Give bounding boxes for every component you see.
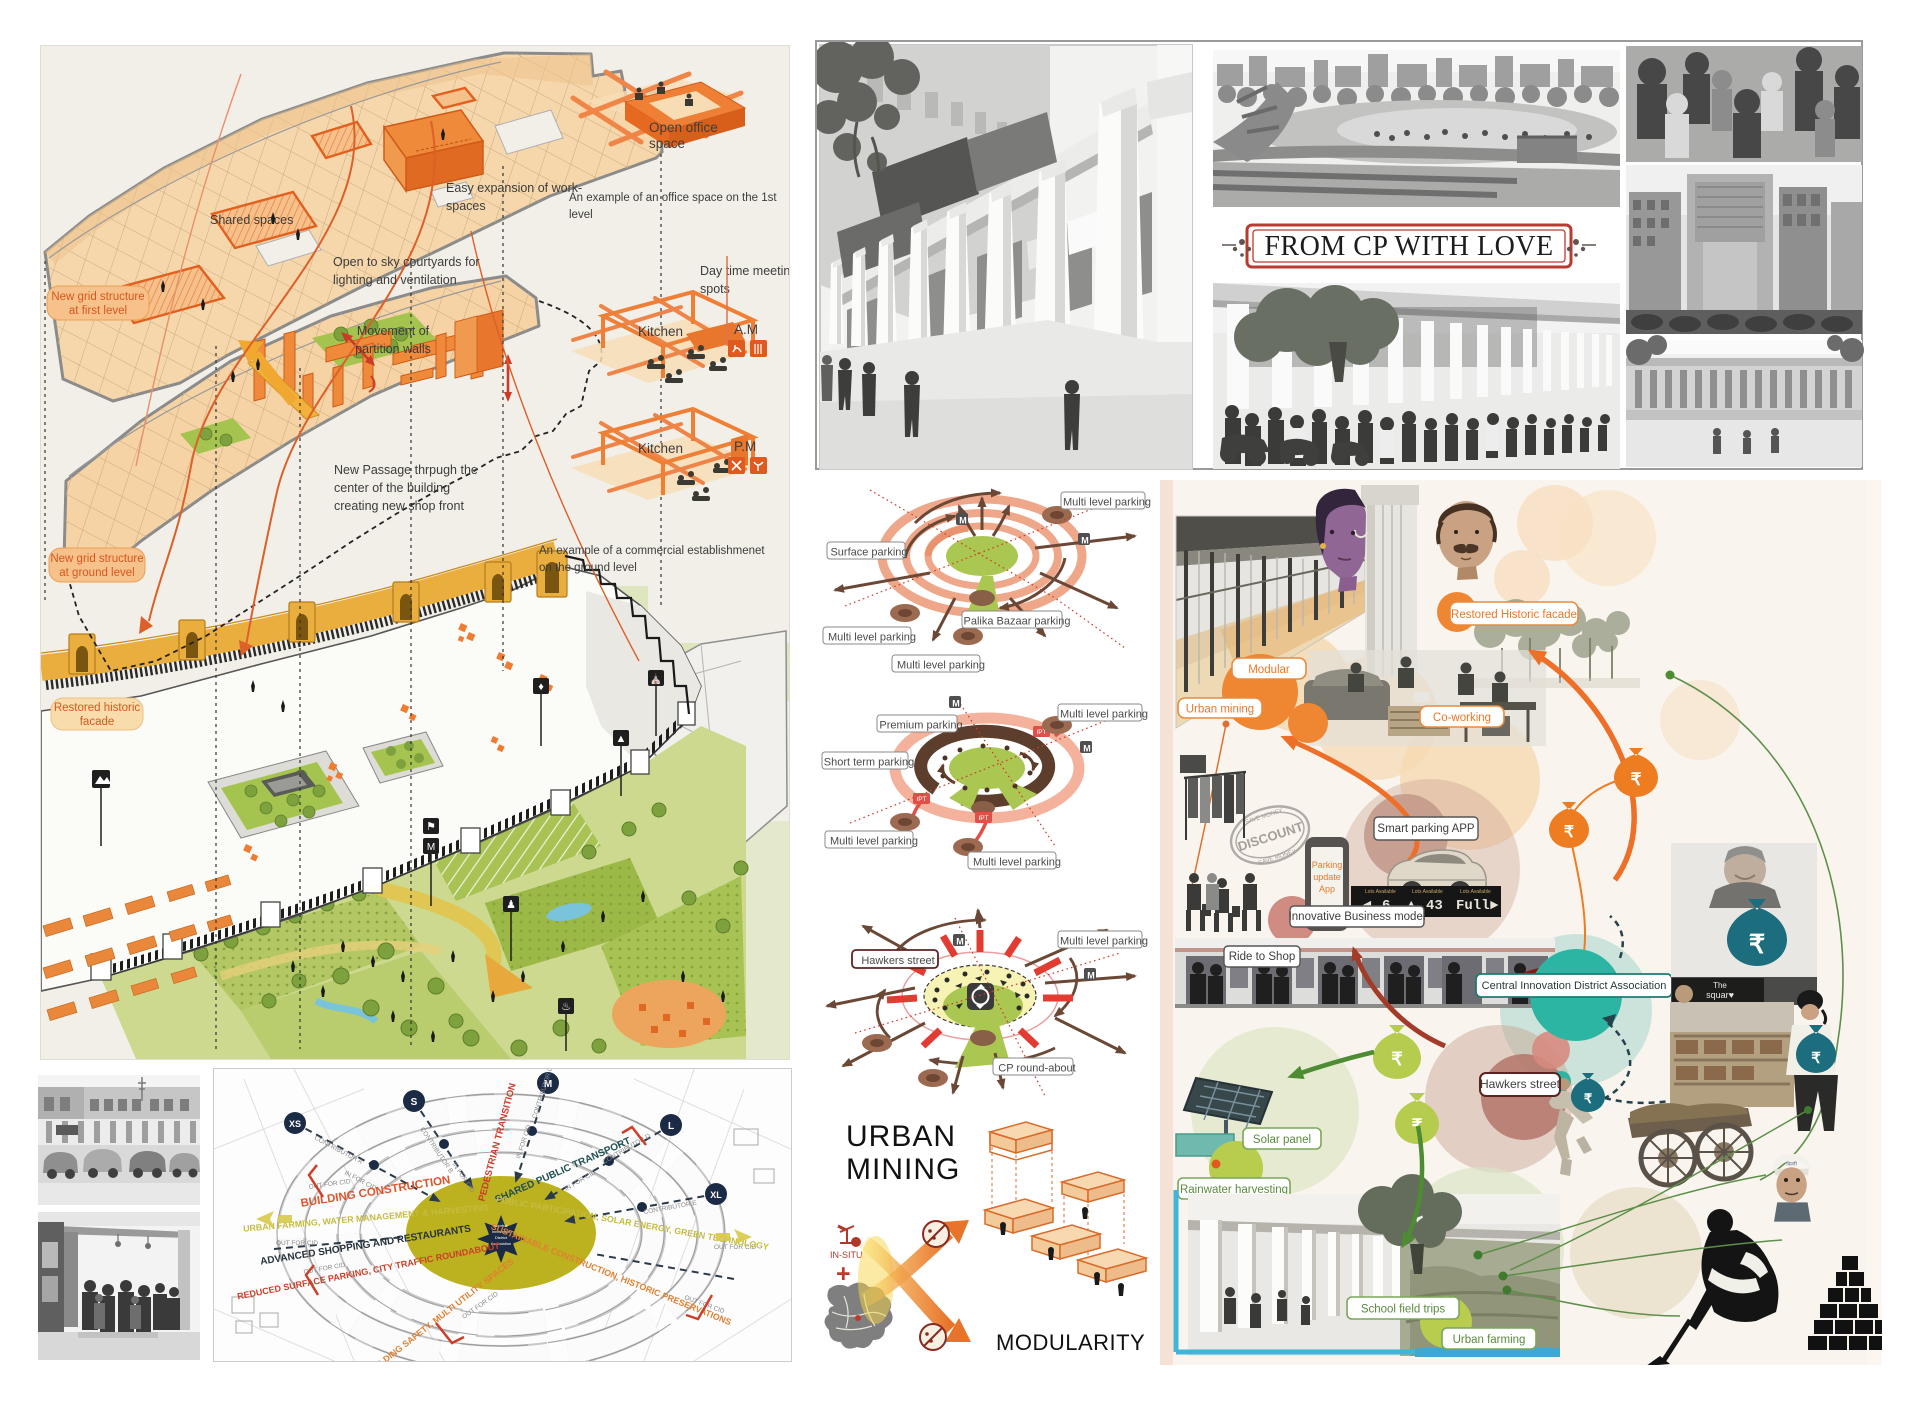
svg-text:♦: ♦ [538,681,544,693]
svg-text:Central Innovation District As: Central Innovation District Association [1482,980,1667,992]
svg-text:♨: ♨ [561,1001,571,1013]
svg-text:OUT FOR CID: OUT FOR CID [276,1240,318,1247]
svg-text:₹: ₹ [1564,824,1574,841]
svg-text:Surface parking: Surface parking [830,547,907,559]
svg-text:M: M [1087,971,1095,981]
svg-text:IPT: IPT [978,815,988,822]
svg-text:FROM CP WITH LOVE: FROM CP WITH LOVE [1264,231,1553,262]
svg-text:center of the building: center of the building [334,481,450,495]
svg-text:Easy expansion of work-: Easy expansion of work- [446,181,582,195]
svg-text:App: App [1319,884,1335,894]
svg-text:Urban mining: Urban mining [1186,704,1254,716]
svg-text:XL: XL [710,1190,722,1200]
svg-text:School field trips: School field trips [1361,1304,1446,1316]
svg-text:M: M [1081,536,1089,546]
svg-text:Multi level parking: Multi level parking [1063,497,1151,509]
svg-text:IPT: IPT [916,796,926,803]
svg-text:Premium parking: Premium parking [879,720,962,732]
svg-text:New grid structure: New grid structure [50,553,143,565]
svg-text:lighting and ventilation: lighting and ventilation [333,273,457,287]
svg-text:spaces: spaces [446,199,486,213]
svg-text:⚑: ⚑ [426,821,436,833]
svg-text:Innovative Business model: Innovative Business model [1289,911,1426,923]
svg-text:Multi level parking: Multi level parking [1060,709,1148,721]
svg-text:Kitchen: Kitchen [638,324,683,339]
svg-text:Solar panel: Solar panel [1253,1134,1311,1146]
svg-text:at ground level: at ground level [59,567,134,579]
svg-text:partition walls: partition walls [355,342,431,356]
svg-text:spots: spots [700,282,730,296]
svg-text:M: M [952,699,960,709]
svg-text:Multi level parking: Multi level parking [897,660,985,672]
svg-text:Lots Available: Lots Available [1365,889,1396,895]
svg-text:P.M: P.M [734,439,756,454]
svg-text:Modular: Modular [1248,664,1290,676]
svg-text:space: space [649,136,685,151]
svg-text:S: S [411,1097,418,1108]
svg-text:Lots Available: Lots Available [1412,889,1443,895]
svg-text:Open office: Open office [649,120,718,135]
svg-text:►: ► [1490,898,1499,914]
svg-text:CP round-about: CP round-about [998,1063,1075,1075]
svg-text:An example of an office space: An example of an office space on the 1st [569,192,777,204]
svg-text:Movement of: Movement of [357,324,430,338]
svg-text:facade: facade [80,716,115,728]
svg-text:Day time meeting: Day time meeting [700,264,789,278]
svg-text:Ride to Shop: Ride to Shop [1229,951,1296,963]
svg-text:Co-working: Co-working [1433,712,1491,724]
svg-text:▲: ▲ [616,733,627,745]
svg-text:₹: ₹ [1391,1049,1403,1069]
svg-text:Multi level parking: Multi level parking [830,836,918,848]
svg-text:An example of a commercial est: An example of a commercial establishmene… [539,545,765,557]
svg-text:Urban farming: Urban farming [1453,1334,1526,1346]
svg-text:XS: XS [289,1119,301,1129]
svg-text:₹: ₹ [1749,929,1766,959]
svg-text:update: update [1313,872,1341,882]
svg-text:♟: ♟ [506,899,516,911]
svg-text:⛪: ⛪ [650,672,662,685]
svg-text:Open to sky courtyards for: Open to sky courtyards for [333,255,480,269]
svg-text:Restored historic: Restored historic [54,702,141,714]
svg-text:Kitchen: Kitchen [638,441,683,456]
svg-text:+: + [836,1260,851,1288]
svg-text:Shared spaces: Shared spaces [210,213,293,227]
svg-text:43: 43 [1426,898,1443,914]
svg-text:Restored Historic facade: Restored Historic facade [1451,609,1577,621]
svg-text:at first level: at first level [69,305,127,317]
svg-text:squar♥: squar♥ [1706,990,1734,1000]
svg-text:Palika Bazaar parking: Palika Bazaar parking [963,616,1070,628]
svg-text:₹: ₹ [1811,1050,1821,1067]
svg-text:M: M [1083,744,1091,754]
svg-text:Short term parking: Short term parking [824,757,914,769]
svg-text:Lots Available: Lots Available [1460,889,1491,895]
svg-text:L: L [668,1121,674,1132]
svg-text:on the ground level: on the ground level [539,562,637,574]
svg-text:creating new shop front: creating new shop front [334,499,464,513]
svg-text:Multi level parking: Multi level parking [973,857,1061,869]
svg-text:Multi level parking: Multi level parking [1060,936,1148,948]
svg-text:Full: Full [1456,898,1490,914]
svg-text:The: The [1713,981,1727,990]
svg-text:Smart parking APP: Smart parking APP [1377,823,1474,835]
svg-text:₹: ₹ [1584,1091,1593,1106]
svg-text:New grid structure: New grid structure [51,291,144,303]
svg-text:New Passage thrpugh the: New Passage thrpugh the [334,463,478,477]
svg-text:M: M [427,842,435,853]
svg-text:Hawkers street: Hawkers street [861,955,934,967]
svg-text:M: M [956,937,964,947]
svg-text:Multi level parking: Multi level parking [828,632,916,644]
svg-text:level: level [569,209,593,221]
svg-text:M: M [959,516,967,526]
svg-text:A.M: A.M [734,322,758,337]
svg-text:₹: ₹ [1631,770,1642,789]
svg-text:Parking: Parking [1312,860,1343,870]
svg-text:Hawkers street: Hawkers street [1480,1077,1561,1091]
svg-text:IN-SITU: IN-SITU [830,1250,863,1260]
